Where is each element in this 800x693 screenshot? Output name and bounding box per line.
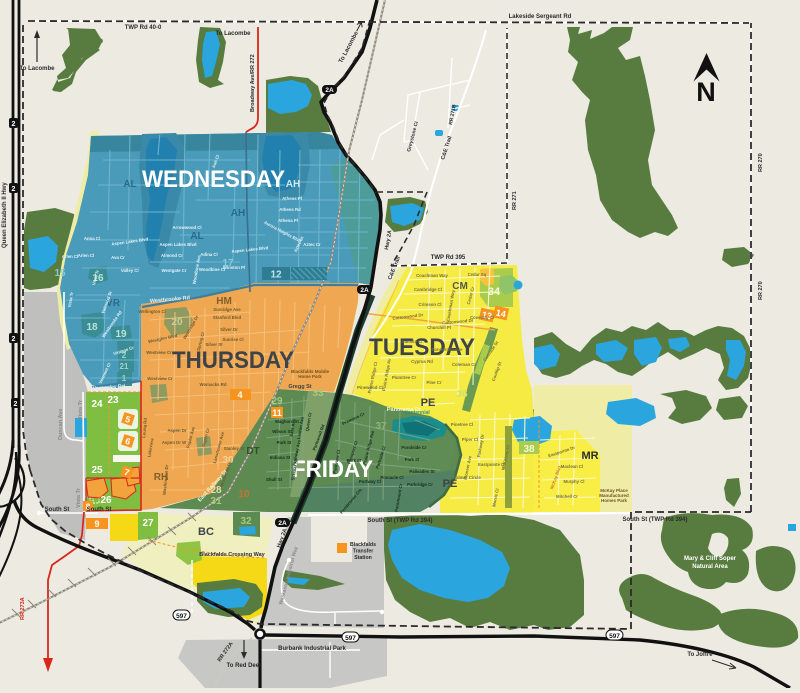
svg-text:32: 32 bbox=[240, 516, 252, 527]
svg-text:AL: AL bbox=[190, 231, 203, 242]
svg-text:To Lacombe: To Lacombe bbox=[216, 31, 252, 37]
svg-text:Park: Park bbox=[412, 416, 423, 422]
svg-text:Arlen Cl: Arlen Cl bbox=[62, 254, 78, 259]
svg-text:Athens Pl: Athens Pl bbox=[282, 196, 302, 201]
svg-text:Broadway Ave/RR 272: Broadway Ave/RR 272 bbox=[250, 54, 256, 112]
svg-text:Silver St: Silver St bbox=[205, 342, 223, 347]
svg-text:Westview Cr: Westview Cr bbox=[147, 376, 173, 381]
svg-text:Shull St: Shull St bbox=[266, 477, 283, 482]
svg-text:Westview Cr: Westview Cr bbox=[146, 350, 172, 355]
svg-text:Arlen Cl: Arlen Cl bbox=[78, 253, 94, 258]
svg-text:Burbank Industrial Park: Burbank Industrial Park bbox=[278, 646, 346, 652]
svg-text:South St (TWP Rd 394): South St (TWP Rd 394) bbox=[623, 517, 688, 523]
svg-text:Murphy Cl: Murphy Cl bbox=[563, 479, 584, 484]
svg-text:Homes Park: Homes Park bbox=[601, 498, 628, 503]
svg-text:12: 12 bbox=[270, 270, 282, 281]
svg-text:Home Park: Home Park bbox=[298, 374, 322, 379]
svg-text:Vista Tr: Vista Tr bbox=[76, 487, 82, 508]
svg-text:Pondside Cr: Pondside Cr bbox=[401, 445, 427, 450]
svg-text:24: 24 bbox=[91, 399, 103, 410]
svg-text:597: 597 bbox=[609, 633, 620, 640]
svg-text:2A: 2A bbox=[278, 520, 287, 527]
svg-text:HM: HM bbox=[216, 296, 232, 307]
svg-text:AH: AH bbox=[286, 179, 300, 190]
svg-text:RR 270: RR 270 bbox=[758, 153, 764, 172]
svg-text:To Lacombe: To Lacombe bbox=[20, 66, 56, 72]
svg-text:2: 2 bbox=[14, 401, 18, 408]
svg-text:Park St: Park St bbox=[405, 457, 420, 462]
svg-text:38: 38 bbox=[523, 444, 535, 455]
svg-text:To Joffre: To Joffre bbox=[687, 652, 713, 658]
svg-text:PE: PE bbox=[421, 397, 436, 409]
svg-text:Blackfalds Crossing Way: Blackfalds Crossing Way bbox=[199, 552, 265, 558]
svg-text:27: 27 bbox=[142, 518, 154, 529]
svg-text:Parkridge Cr: Parkridge Cr bbox=[407, 482, 433, 487]
svg-text:597: 597 bbox=[176, 613, 187, 620]
svg-text:Stanford Blvd: Stanford Blvd bbox=[213, 315, 242, 320]
svg-text:TWP Rd 40-0: TWP Rd 40-0 bbox=[125, 25, 162, 31]
svg-text:Coachman Way: Coachman Way bbox=[416, 273, 448, 278]
svg-text:31: 31 bbox=[210, 496, 222, 507]
svg-text:Blackfalds: Blackfalds bbox=[350, 542, 376, 548]
svg-text:Cedar Sq: Cedar Sq bbox=[468, 272, 487, 277]
svg-text:9: 9 bbox=[94, 519, 99, 529]
svg-text:Westgate Cr: Westgate Cr bbox=[162, 268, 187, 273]
svg-text:Aztec Cr: Aztec Cr bbox=[303, 242, 321, 247]
svg-text:19: 19 bbox=[115, 329, 127, 340]
svg-text:Winston Pl: Winston Pl bbox=[223, 265, 245, 270]
svg-text:AH: AH bbox=[231, 208, 245, 219]
svg-text:Vista Tr: Vista Tr bbox=[78, 399, 84, 420]
svg-text:Piper Cl: Piper Cl bbox=[462, 437, 478, 442]
svg-text:Aspen Dr W: Aspen Dr W bbox=[162, 440, 187, 445]
svg-text:Camille Ct: Camille Ct bbox=[401, 339, 423, 344]
svg-text:Mitchell Cr: Mitchell Cr bbox=[556, 494, 578, 499]
svg-text:Pinewood Cl: Pinewood Cl bbox=[357, 385, 383, 390]
svg-text:Woodbine Cl: Woodbine Cl bbox=[199, 267, 225, 272]
svg-text:23: 23 bbox=[107, 395, 119, 406]
svg-text:20: 20 bbox=[171, 317, 183, 328]
svg-text:Pinetree Cl: Pinetree Cl bbox=[451, 422, 473, 427]
svg-text:15: 15 bbox=[54, 268, 66, 279]
svg-text:Coventry Cl: Coventry Cl bbox=[470, 315, 494, 320]
svg-text:TWP Rd 395: TWP Rd 395 bbox=[431, 255, 466, 261]
svg-text:4: 4 bbox=[237, 390, 242, 400]
svg-text:South St: South St bbox=[87, 507, 112, 513]
svg-text:2: 2 bbox=[12, 336, 16, 343]
svg-text:Almond Cr: Almond Cr bbox=[161, 253, 183, 258]
svg-text:Womacks Rd: Womacks Rd bbox=[200, 382, 227, 387]
svg-text:RR 273A: RR 273A bbox=[20, 597, 26, 620]
svg-text:Silver Dr: Silver Dr bbox=[220, 327, 238, 332]
svg-text:Wellington Cl: Wellington Cl bbox=[138, 309, 165, 314]
svg-text:Ponderosa Ave: Ponderosa Ave bbox=[432, 347, 464, 352]
svg-text:Aspen Dr: Aspen Dr bbox=[167, 428, 186, 433]
svg-text:Plumtree Cr: Plumtree Cr bbox=[392, 375, 417, 380]
svg-text:37: 37 bbox=[375, 421, 387, 432]
svg-text:Natural Area: Natural Area bbox=[692, 564, 728, 570]
svg-text:Ava Cr: Ava Cr bbox=[111, 255, 125, 260]
svg-text:Panorama Dr: Panorama Dr bbox=[387, 407, 422, 413]
svg-text:Churchill Pl: Churchill Pl bbox=[427, 325, 451, 330]
svg-text:10: 10 bbox=[238, 489, 250, 500]
svg-text:Cambridge Cl: Cambridge Cl bbox=[414, 287, 442, 292]
svg-text:South St: South St bbox=[45, 507, 70, 513]
svg-text:2: 2 bbox=[12, 121, 16, 128]
svg-text:Maclean Cl: Maclean Cl bbox=[561, 464, 583, 469]
svg-text:MR: MR bbox=[581, 450, 598, 462]
svg-text:Anna Cl: Anna Cl bbox=[84, 236, 100, 241]
svg-text:Cyprus Rd: Cyprus Rd bbox=[411, 359, 433, 364]
svg-text:AL: AL bbox=[123, 179, 136, 190]
svg-text:Transfer: Transfer bbox=[353, 549, 373, 555]
svg-text:18: 18 bbox=[86, 322, 98, 333]
svg-text:Adina Cl: Adina Cl bbox=[200, 252, 217, 257]
svg-text:Crimson Cl: Crimson Cl bbox=[419, 302, 442, 307]
svg-text:36: 36 bbox=[456, 389, 468, 400]
svg-text:33: 33 bbox=[312, 388, 324, 399]
svg-text:South St (TWP Rd 394): South St (TWP Rd 394) bbox=[368, 518, 433, 524]
svg-text:Station: Station bbox=[354, 555, 372, 561]
svg-text:34: 34 bbox=[488, 286, 501, 298]
svg-text:Palisades St: Palisades St bbox=[409, 469, 435, 474]
svg-text:Aspen Lakes Blvd: Aspen Lakes Blvd bbox=[159, 242, 196, 247]
svg-text:2A: 2A bbox=[325, 87, 334, 94]
svg-text:25: 25 bbox=[91, 465, 103, 476]
svg-text:29: 29 bbox=[271, 396, 283, 407]
svg-text:Mary & Cliff Soper: Mary & Cliff Soper bbox=[684, 556, 737, 562]
svg-text:WEDNESDAY: WEDNESDAY bbox=[142, 166, 285, 193]
svg-text:Portway Cl: Portway Cl bbox=[359, 479, 381, 484]
svg-text:21: 21 bbox=[120, 362, 129, 371]
svg-text:Indiana St: Indiana St bbox=[270, 455, 291, 460]
svg-text:Duncan Ave: Duncan Ave bbox=[58, 409, 64, 440]
svg-text:Park St: Park St bbox=[277, 440, 292, 445]
svg-text:Valley Cr: Valley Cr bbox=[121, 268, 139, 273]
svg-text:RR 270: RR 270 bbox=[758, 281, 764, 300]
svg-text:Palmer Circle: Palmer Circle bbox=[453, 475, 481, 480]
svg-text:Park St: Park St bbox=[347, 458, 362, 463]
svg-text:N: N bbox=[696, 77, 716, 107]
svg-text:2: 2 bbox=[12, 186, 16, 193]
svg-text:DT: DT bbox=[246, 446, 259, 457]
svg-text:RR 271: RR 271 bbox=[512, 191, 518, 210]
svg-text:597: 597 bbox=[345, 635, 356, 642]
svg-text:Sunrise Cl: Sunrise Cl bbox=[222, 337, 243, 342]
svg-text:Sunridge Ave: Sunridge Ave bbox=[213, 307, 241, 312]
svg-text:Pinnacle Cl: Pinnacle Cl bbox=[380, 475, 403, 480]
svg-text:1: 1 bbox=[122, 374, 127, 383]
svg-text:Stanley St: Stanley St bbox=[224, 446, 245, 451]
svg-text:Arrowwood Cl: Arrowwood Cl bbox=[172, 225, 201, 230]
svg-text:Gregg St: Gregg St bbox=[288, 384, 311, 390]
svg-text:BC: BC bbox=[198, 526, 214, 538]
svg-text:To Red Deer: To Red Deer bbox=[227, 663, 263, 669]
svg-text:Lakeside Sergeant Rd: Lakeside Sergeant Rd bbox=[509, 14, 572, 20]
svg-text:Athena Pl: Athena Pl bbox=[278, 218, 298, 223]
svg-text:2A: 2A bbox=[360, 287, 369, 294]
svg-text:Pine Cr: Pine Cr bbox=[426, 380, 441, 385]
svg-text:Queen Elizabeth II Hwy: Queen Elizabeth II Hwy bbox=[2, 182, 8, 248]
svg-text:Athens Rd: Athens Rd bbox=[279, 207, 301, 212]
svg-text:11: 11 bbox=[272, 408, 282, 418]
svg-text:26: 26 bbox=[100, 495, 112, 506]
svg-text:THURSDAY: THURSDAY bbox=[172, 347, 294, 374]
svg-text:14: 14 bbox=[495, 308, 507, 320]
svg-text:Coleman Cr: Coleman Cr bbox=[452, 362, 476, 367]
